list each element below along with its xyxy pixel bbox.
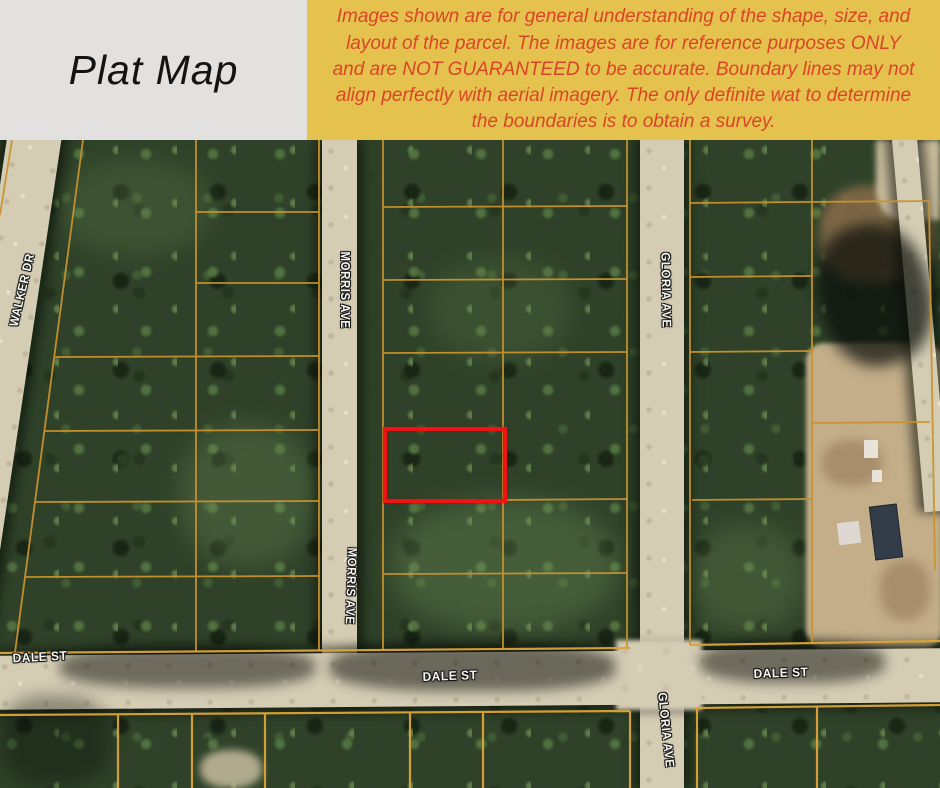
disclaimer-text: Images shown are for general understandi… <box>329 4 918 135</box>
white-outbuilding <box>864 440 878 458</box>
street-label-dale-st-west: DALE ST <box>12 649 67 666</box>
dirt-patch <box>880 560 930 620</box>
plat-map-page: Plat Map Images shown are for general un… <box>0 0 940 788</box>
page-title: Plat Map <box>69 47 239 94</box>
walker-dr-road <box>0 140 64 717</box>
light-canopy-patch <box>690 525 805 630</box>
white-shed <box>837 521 862 546</box>
street-label-dale-st-center: DALE ST <box>422 668 477 684</box>
selected-parcel-highlight <box>383 427 507 503</box>
east-edge-road <box>891 140 940 512</box>
street-label-morris-ave-north: MORRIS AVE <box>338 251 352 328</box>
light-canopy-patch <box>430 260 570 360</box>
disclaimer-banner: Images shown are for general understandi… <box>307 0 940 140</box>
light-ground-patch <box>200 750 262 788</box>
light-canopy-patch <box>392 500 617 630</box>
title-box: Plat Map <box>0 0 307 140</box>
street-label-gloria-ave-north: GLORIA AVE <box>658 252 673 328</box>
aerial-map: WALKER DR MORRIS AVE MORRIS AVE GLORIA A… <box>0 140 940 788</box>
light-canopy-patch <box>180 425 315 565</box>
house-roof <box>869 503 903 560</box>
white-outbuilding <box>872 470 882 482</box>
street-label-dale-st-east: DALE ST <box>753 665 808 681</box>
light-canopy-patch <box>60 160 210 255</box>
street-label-morris-ave-south: MORRIS AVE <box>343 547 360 625</box>
